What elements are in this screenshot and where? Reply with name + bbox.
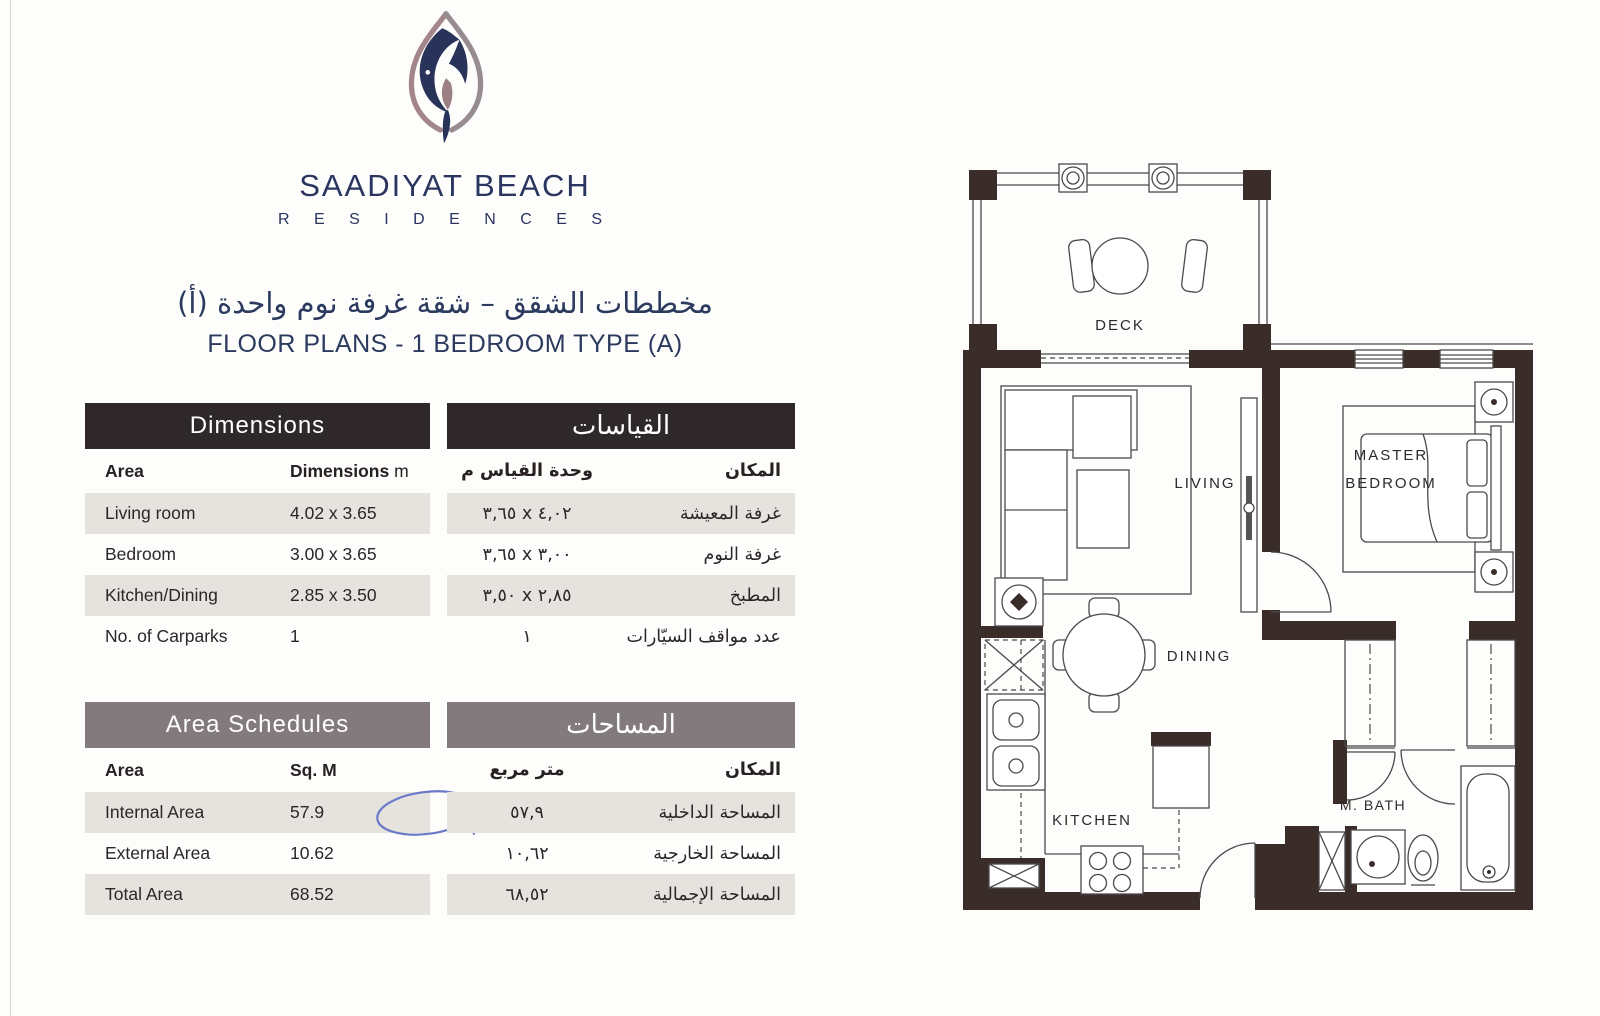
tall-cabinet-icon bbox=[985, 640, 1043, 690]
dining-room: DINING bbox=[1053, 598, 1231, 712]
areas-table-colhead: Area Sq. M bbox=[85, 748, 430, 792]
nightstand-icon bbox=[1475, 552, 1513, 592]
closets bbox=[1345, 640, 1515, 748]
deck-label: DECK bbox=[1095, 317, 1145, 334]
scan-edge-line bbox=[10, 0, 11, 1016]
col-place: المكان bbox=[607, 461, 795, 481]
col-place: المكان bbox=[607, 760, 795, 780]
hall-door bbox=[1347, 752, 1395, 800]
bath-door bbox=[1401, 750, 1455, 804]
living-label: LIVING bbox=[1174, 475, 1235, 492]
ac-unit-icon bbox=[995, 578, 1043, 626]
bathtub-icon bbox=[1461, 766, 1515, 890]
table-row: No. of Carparks 1 bbox=[85, 616, 430, 657]
table-row: المساحة الخارجية ١٠,٦٢ bbox=[447, 833, 795, 874]
table-row: المساحة الداخلية ٥٧,٩ bbox=[447, 792, 795, 833]
master-bath: M. BATH bbox=[1340, 766, 1515, 890]
sink-icon bbox=[987, 694, 1045, 790]
table-row: غرفة المعيشة ٣,٦٥ x ٤,٠٢ bbox=[447, 493, 795, 534]
col-sqm: متر مربع bbox=[447, 760, 607, 780]
master-bedroom-label: BEDROOM bbox=[1345, 475, 1437, 492]
deck-table-icon bbox=[1068, 238, 1208, 294]
brand-logo-icon bbox=[398, 6, 494, 156]
dimensions-table-colhead: Area Dimensions m bbox=[85, 449, 430, 493]
internal-area-value: 57.9 bbox=[290, 802, 430, 823]
island-cabinet-icon bbox=[1153, 746, 1209, 808]
bath-label: M. BATH bbox=[1340, 797, 1406, 813]
areas-table-ar: المساحات المكان متر مربع المساحة الداخلي… bbox=[447, 702, 795, 915]
bedroom-door bbox=[1271, 552, 1331, 612]
col-unit: وحدة القياس م bbox=[447, 461, 607, 481]
table-row: المطبخ ٣,٥٠ x ٢,٨٥ bbox=[447, 575, 795, 616]
areas-table-header: Area Schedules bbox=[85, 702, 430, 748]
areas-table-ar-header: المساحات bbox=[447, 702, 795, 748]
fridge-icon bbox=[989, 864, 1039, 888]
brand-name: SAADIYAT BEACH R E S I D E N C E S bbox=[195, 168, 695, 229]
dimensions-table-ar-header: القياسات bbox=[447, 403, 795, 449]
dimensions-table-ar-colhead: المكان وحدة القياس م bbox=[447, 449, 795, 493]
table-row: Total Area 68.52 bbox=[85, 874, 430, 915]
areas-table-en: Area Schedules Area Sq. M Internal Area … bbox=[85, 702, 430, 915]
washbasin-icon bbox=[1351, 830, 1405, 884]
table-row: Kitchen/Dining 2.85 x 3.50 bbox=[85, 575, 430, 616]
areas-table-ar-colhead: المكان متر مربع bbox=[447, 748, 795, 792]
deck-pillar bbox=[1243, 170, 1271, 200]
dimensions-table-header: Dimensions bbox=[85, 403, 430, 449]
brand-name-line2: R E S I D E N C E S bbox=[195, 211, 695, 229]
entry-door bbox=[1200, 843, 1255, 898]
table-row: غرفة النوم ٣,٦٥ x ٣,٠٠ bbox=[447, 534, 795, 575]
nightstand-icon bbox=[1475, 382, 1513, 422]
table-row: Bedroom 3.00 x 3.65 bbox=[85, 534, 430, 575]
col-area: Area bbox=[85, 760, 290, 781]
table-row: Living room 4.02 x 3.65 bbox=[85, 493, 430, 534]
stove-icon bbox=[1081, 846, 1143, 894]
dimensions-table-ar: القياسات المكان وحدة القياس م غرفة المعي… bbox=[447, 403, 795, 657]
window bbox=[1440, 350, 1493, 368]
kitchen-label: KITCHEN bbox=[1052, 812, 1132, 829]
col-area: Area bbox=[85, 461, 290, 482]
table-row: Internal Area 57.9 bbox=[85, 792, 430, 833]
table-row: External Area 10.62 bbox=[85, 833, 430, 874]
coffee-table-icon bbox=[1077, 470, 1129, 548]
window bbox=[1355, 350, 1403, 368]
master-bedroom: MASTER BEDROOM bbox=[1343, 382, 1513, 592]
tv-unit-icon bbox=[1241, 398, 1257, 612]
shaft-icon bbox=[1319, 832, 1345, 890]
brochure-page: { "brand": { "name_line1": "SAADIYAT BEA… bbox=[0, 0, 1600, 1016]
table-row: عدد مواقف السيّارات ١ bbox=[447, 616, 795, 657]
col-dimensions: Dimensions m bbox=[290, 461, 430, 482]
dining-label: DINING bbox=[1167, 648, 1232, 665]
brand-name-line1: SAADIYAT BEACH bbox=[195, 168, 695, 204]
dining-table-icon bbox=[1053, 598, 1155, 712]
deck-room: DECK bbox=[969, 164, 1271, 362]
master-bedroom-label: MASTER bbox=[1354, 447, 1429, 464]
table-row: المساحة الإجمالية ٦٨,٥٢ bbox=[447, 874, 795, 915]
page-title-arabic: مخططات الشقق – شقة غرفة نوم واحدة (أ) bbox=[125, 286, 765, 320]
dimensions-table-en: Dimensions Area Dimensions m Living room… bbox=[85, 403, 430, 657]
deck-pillar bbox=[969, 170, 997, 200]
col-sqm: Sq. M bbox=[290, 760, 430, 781]
toilet-icon bbox=[1408, 835, 1438, 885]
floor-plan: DECK bbox=[955, 158, 1535, 918]
page-title-english: FLOOR PLANS - 1 BEDROOM TYPE (A) bbox=[125, 330, 765, 359]
